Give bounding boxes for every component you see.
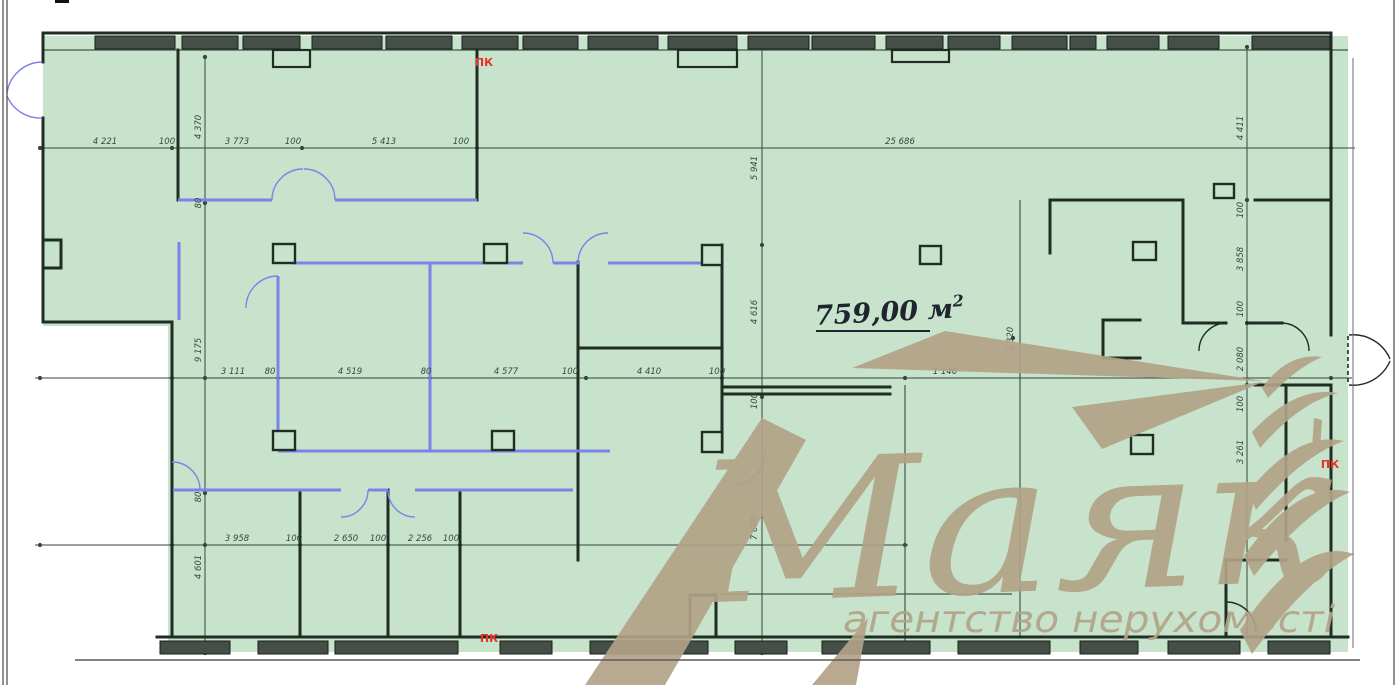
window-pane-bottom: [958, 641, 1050, 654]
window-pane-top: [748, 36, 809, 49]
dimension-node-dot: [760, 395, 764, 399]
window-pane-top: [386, 36, 452, 49]
dimension-node-dot: [1245, 45, 1249, 49]
column-marker: [492, 431, 514, 450]
window-pane-top: [588, 36, 658, 49]
dimension-node-dot: [38, 376, 42, 380]
dimension-label-vertical: 5 941: [750, 156, 760, 180]
wall-pier: [678, 50, 737, 67]
window-pane-bottom: [160, 641, 230, 654]
dimension-label: 100: [443, 534, 459, 544]
dimension-label-vertical: 80: [194, 198, 204, 209]
pk-mark: ПК: [480, 632, 498, 645]
dimension-label-vertical: 100: [1236, 301, 1246, 317]
window-pane-top: [948, 36, 1000, 49]
wall-pier: [273, 50, 310, 67]
door-swing-arc-blue: [7, 62, 42, 93]
window-pane-bottom: [1168, 641, 1240, 654]
window-pane-bottom: [258, 641, 328, 654]
dimension-label: 100: [286, 534, 302, 544]
column-marker: [484, 244, 507, 263]
window-pane-top: [812, 36, 875, 49]
dimension-node-dot: [203, 376, 207, 380]
dimension-node-dot: [903, 376, 907, 380]
window-pane-top: [95, 36, 175, 49]
dimension-label: 100: [285, 137, 301, 147]
dimension-node-dot: [1245, 198, 1249, 202]
window-pane-top: [1012, 36, 1067, 49]
dimension-label-vertical: 4 616: [750, 299, 760, 324]
dimension-node-dot: [203, 543, 207, 547]
dimension-node-dot: [38, 146, 42, 150]
dimension-node-dot: [1329, 376, 1333, 380]
watermark-tagline-text: агентство нерухомості: [843, 598, 1336, 641]
dimension-label-vertical: 100: [750, 393, 760, 409]
window-pane-bottom: [335, 641, 458, 654]
window-pane-top: [886, 36, 943, 49]
dimension-node-dot: [584, 376, 588, 380]
dimension-label: 5 413: [372, 137, 396, 147]
window-pane-top: [462, 36, 518, 49]
column-marker: [702, 245, 722, 265]
column-marker: [920, 246, 941, 264]
dimension-label: 80: [421, 367, 432, 377]
window-pane-top: [182, 36, 238, 49]
dimension-label: 100: [709, 367, 725, 377]
dimension-node-dot: [760, 243, 764, 247]
column-marker: [1214, 184, 1234, 198]
dimension-label-vertical: 80: [194, 492, 204, 503]
dimension-label: 2 650: [334, 534, 358, 544]
dimension-label: 4 577: [494, 367, 519, 377]
dimension-label-vertical: 9 175: [194, 338, 204, 362]
dimension-label: 3 773: [225, 137, 249, 147]
door-swing-arc: [1349, 335, 1390, 359]
window-pane-bottom: [1268, 641, 1330, 654]
dimension-label-vertical: 4 411: [1236, 116, 1246, 140]
window-pane-bottom: [1080, 641, 1138, 654]
pk-mark: ПК: [475, 56, 493, 69]
dimension-label: 4 410: [637, 367, 661, 377]
column-marker: [1133, 242, 1156, 260]
dimension-node-dot: [203, 55, 207, 59]
window-pane-top: [312, 36, 382, 49]
dimension-label: 100: [159, 137, 175, 147]
dimension-label: 3 111: [221, 367, 245, 377]
sheet-corner-tick: [55, 0, 69, 3]
door-swing-arc: [1349, 361, 1390, 385]
dimension-label: 100: [370, 534, 386, 544]
window-pane-top: [1252, 36, 1330, 49]
column-marker: [273, 244, 295, 263]
floor-plan-svg: 4 2211003 7731005 41310025 6863 111804 5…: [0, 0, 1400, 685]
window-pane-bottom: [500, 641, 552, 654]
dimension-label: 4 519: [338, 367, 362, 377]
dimension-label: 4 221: [93, 137, 117, 147]
dimension-label: 100: [562, 367, 578, 377]
dimension-label: 2 256: [408, 534, 433, 544]
dimension-node-dot: [38, 543, 42, 547]
window-pane-top: [1107, 36, 1159, 49]
area-superscript: 2: [951, 291, 964, 311]
dimension-label: 80: [265, 367, 276, 377]
dimension-label: 25 686: [885, 137, 915, 147]
door-swing-arc-blue: [7, 96, 42, 118]
floor-plan-page: 4 2211003 7731005 41310025 6863 111804 5…: [0, 0, 1400, 685]
dimension-label: 3 958: [225, 534, 250, 544]
dimension-label-vertical: 100: [1236, 202, 1246, 218]
dimension-label-vertical: 4 601: [194, 555, 204, 579]
window-pane-top: [1070, 36, 1096, 49]
window-pane-top: [243, 36, 300, 49]
dimension-label-vertical: 4 370: [194, 115, 204, 139]
dimension-label: 100: [453, 137, 469, 147]
dimension-label-vertical: 2 080: [1236, 347, 1246, 371]
dimension-label-vertical: 3 858: [1236, 246, 1246, 271]
window-pane-top: [1168, 36, 1219, 49]
window-pane-top: [668, 36, 737, 49]
window-pane-top: [523, 36, 578, 49]
wall-pier: [892, 50, 949, 62]
column-marker: [273, 431, 295, 450]
